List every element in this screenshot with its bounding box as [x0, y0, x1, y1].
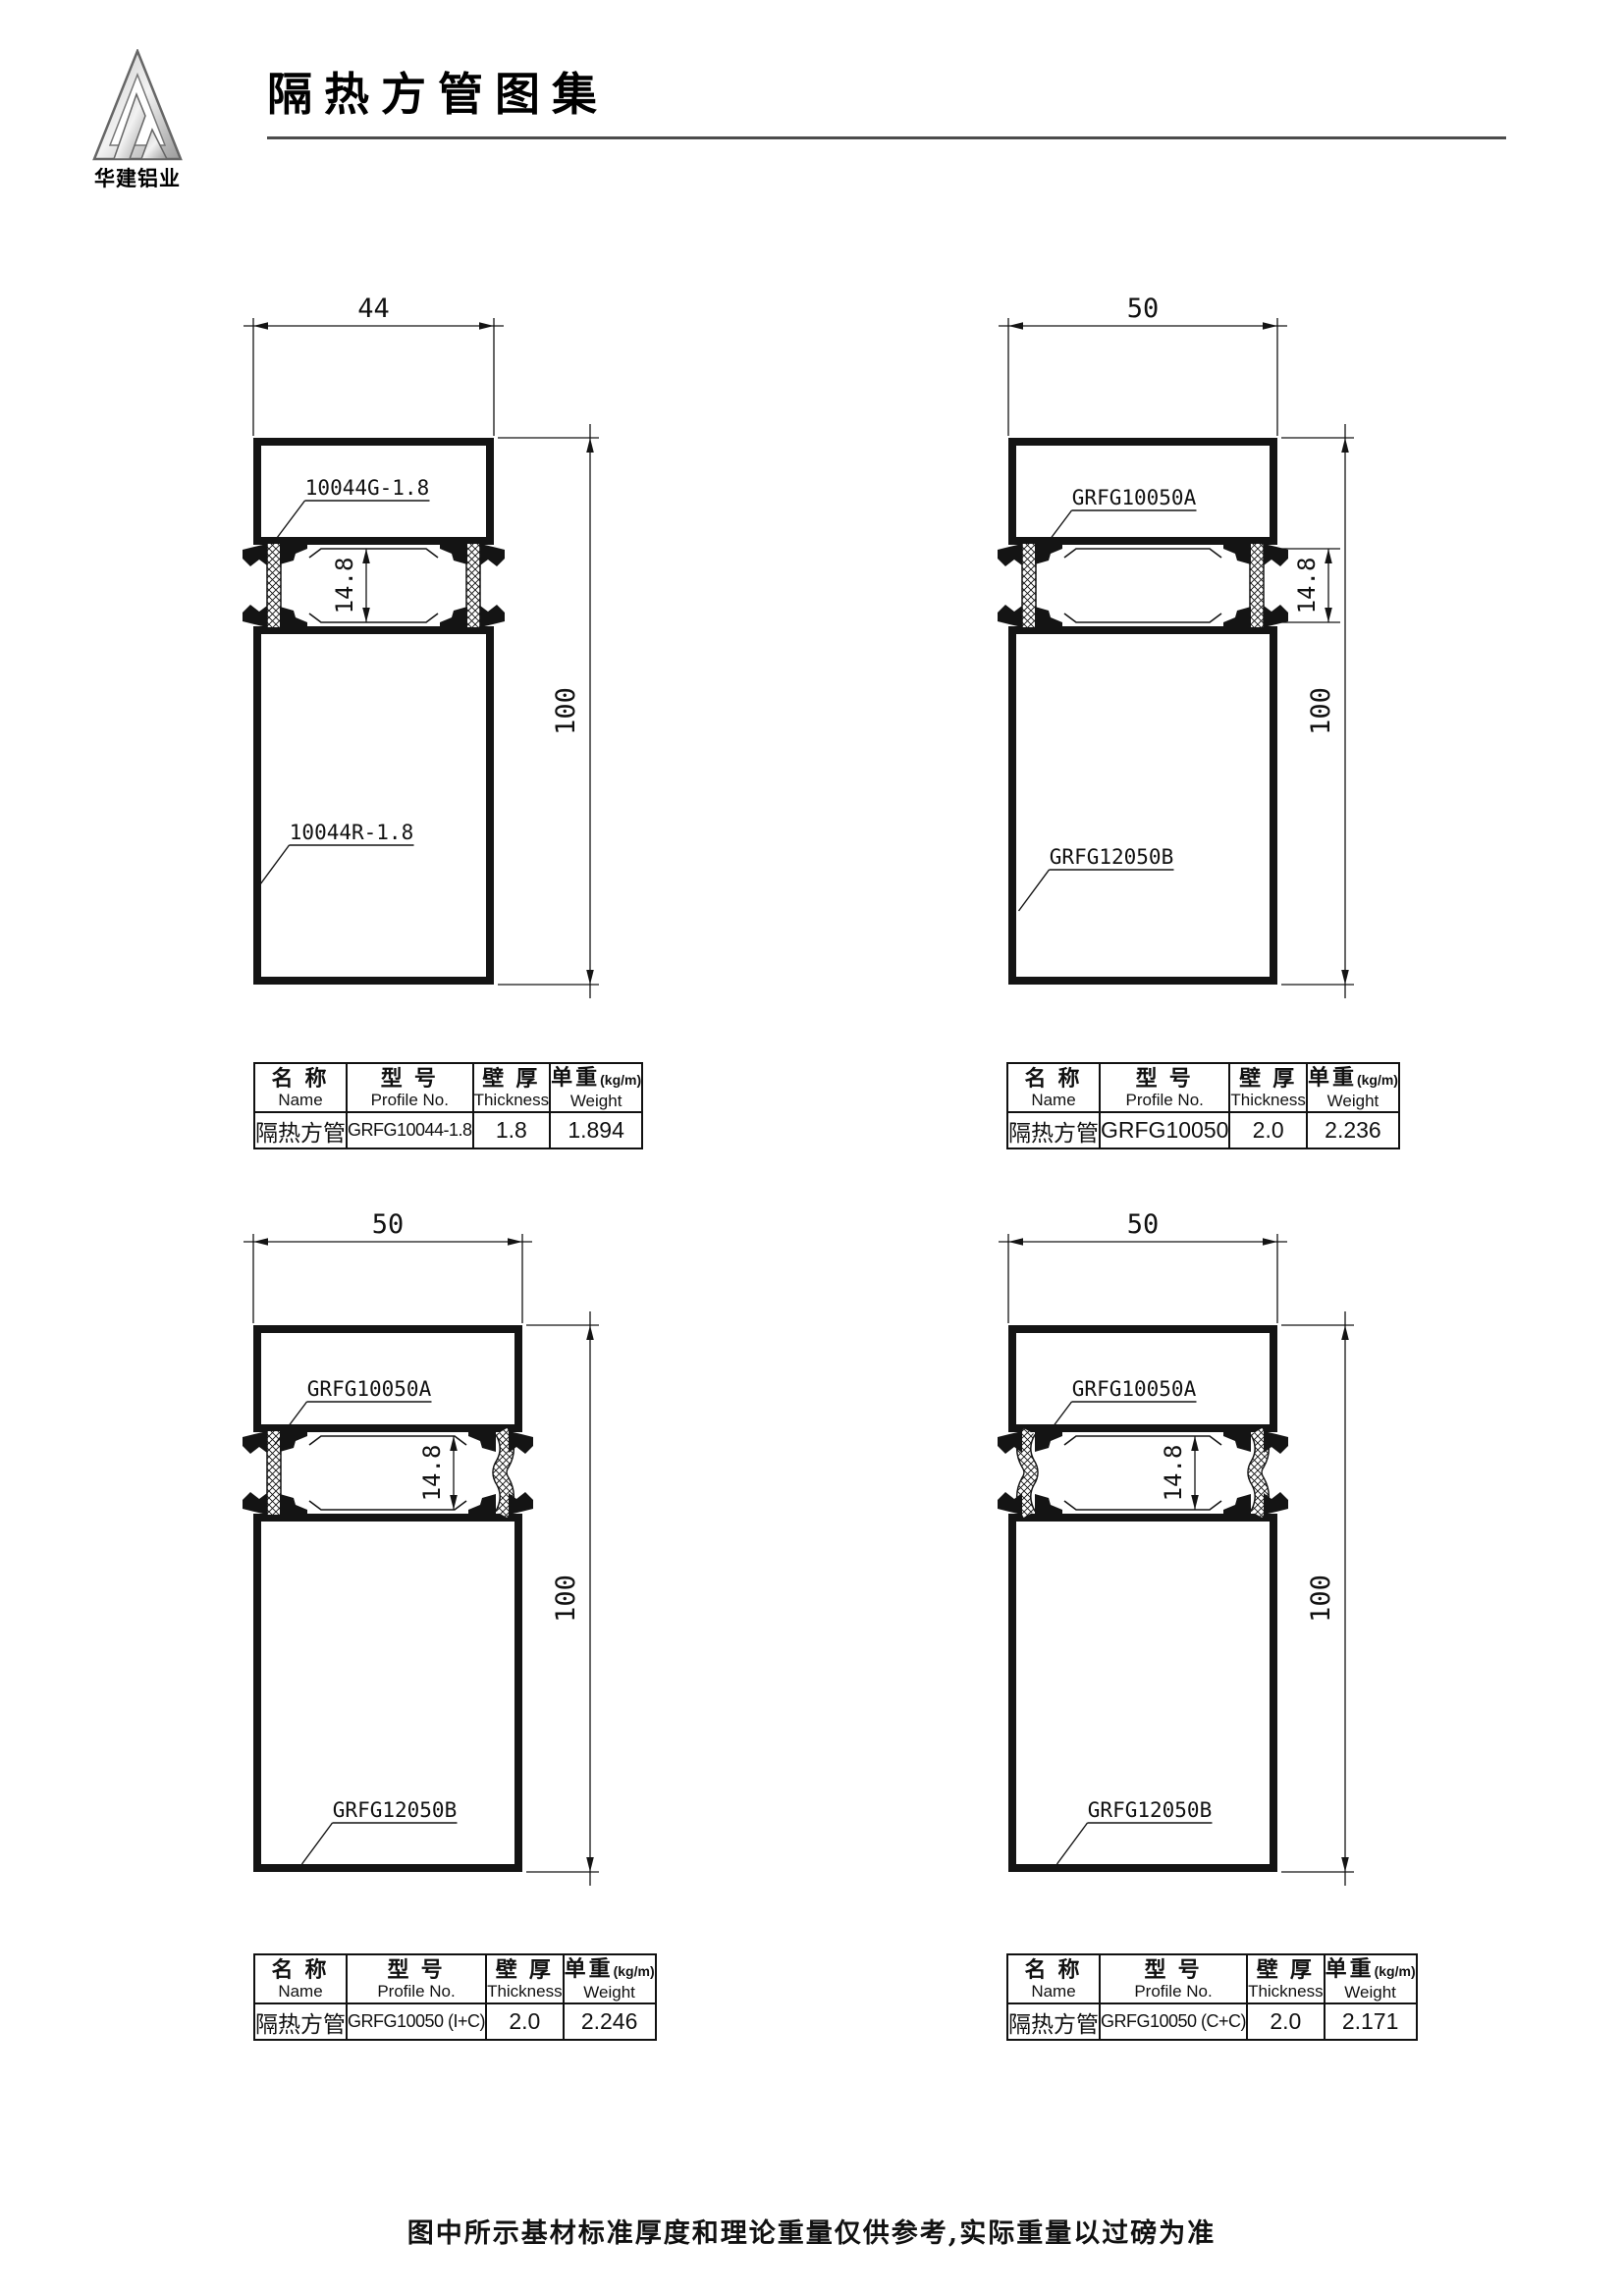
dimension-arrow — [586, 1325, 594, 1340]
dimension-arrow — [1341, 1857, 1349, 1872]
profile-drawing-4: 5010014.8GRFG10050AGRFG12050B — [900, 1168, 1362, 1914]
dimension-arrow — [586, 438, 594, 453]
dimension-arrow — [1008, 322, 1023, 330]
cell-weight: 2.236 — [1307, 1112, 1399, 1148]
top-profile-label: 10044G-1.8 — [305, 476, 429, 500]
width-dimension-text: 50 — [1127, 1209, 1160, 1240]
dimension-arrow — [1263, 1238, 1277, 1246]
dimension-arrow — [1191, 1436, 1199, 1451]
spec-table-3: 名 称Name型 号Profile No.壁 厚Thickness单重(kg/m… — [253, 1953, 657, 2041]
cell-name: 隔热方管 — [254, 2003, 347, 2040]
clamp-wing — [480, 544, 505, 566]
cell-profile-no: GRFG10050 (C+C) — [1100, 2003, 1247, 2040]
company-name: 华建铝业 — [79, 163, 196, 192]
clamp-hook — [440, 544, 467, 564]
dimension-arrow — [450, 1495, 458, 1510]
dimension-arrow — [253, 322, 268, 330]
bottom-profile-label: GRFG12050B — [333, 1798, 457, 1822]
cell-name: 隔热方管 — [1007, 2003, 1100, 2040]
cell-name: 隔热方管 — [1007, 1112, 1100, 1148]
cell-weight: 1.894 — [550, 1112, 642, 1148]
dimension-arrow — [1341, 1325, 1349, 1340]
height-dimension-text: 100 — [551, 1575, 581, 1623]
air-channel-top-edge — [309, 1436, 466, 1445]
clamp-hook — [1035, 1494, 1062, 1515]
title-divider — [267, 136, 1506, 139]
cell-thickness: 2.0 — [486, 2003, 564, 2040]
header-name: 名 称Name — [254, 1063, 347, 1112]
clamp-hook — [440, 607, 467, 627]
spec-table-4: 名 称Name型 号Profile No.壁 厚Thickness单重(kg/m… — [1006, 1953, 1418, 2041]
dimension-arrow — [1325, 608, 1332, 622]
header-name: 名 称Name — [1007, 1954, 1100, 2003]
dimension-arrow — [1008, 1238, 1023, 1246]
air-channel-bottom-edge — [1064, 1501, 1221, 1510]
clamp-hook — [280, 607, 307, 627]
clamp-hook — [1035, 607, 1062, 627]
page: 华建铝业 隔热方管图集 4410014.810044G-1.810044R-1.… — [0, 0, 1623, 2296]
dimension-arrow — [479, 322, 494, 330]
gap-dimension-text: 14.8 — [1293, 558, 1321, 614]
clamp-wing — [998, 605, 1022, 627]
header-profile-no: 型 号Profile No. — [1100, 1063, 1229, 1112]
air-channel-bottom-edge — [309, 614, 438, 622]
company-logo-icon — [90, 49, 185, 167]
bottom-profile-label: 10044R-1.8 — [290, 821, 413, 844]
cell-thickness: 2.0 — [1229, 1112, 1307, 1148]
clamp-wing — [243, 544, 267, 566]
cell-weight: 2.171 — [1325, 2003, 1417, 2040]
header-weight: 单重(kg/m)Weight — [550, 1063, 642, 1112]
gap-dimension-text: 14.8 — [331, 558, 358, 614]
cell-thickness: 2.0 — [1247, 2003, 1325, 2040]
width-dimension-text: 44 — [357, 294, 390, 324]
clamp-wing — [480, 605, 505, 627]
spec-table-grid: 名 称Name型 号Profile No.壁 厚Thickness单重(kg/m… — [1006, 1062, 1400, 1149]
dimension-arrow — [1325, 549, 1332, 563]
cell-name: 隔热方管 — [254, 1112, 347, 1148]
bottom-profile-label: GRFG12050B — [1088, 1798, 1212, 1822]
spec-table-2: 名 称Name型 号Profile No.壁 厚Thickness单重(kg/m… — [1006, 1062, 1400, 1149]
spec-table-grid: 名 称Name型 号Profile No.壁 厚Thickness单重(kg/m… — [253, 1062, 643, 1149]
header-profile-no: 型 号Profile No. — [347, 1954, 486, 2003]
dimension-arrow — [362, 608, 370, 622]
spec-table-grid: 名 称Name型 号Profile No.壁 厚Thickness单重(kg/m… — [1006, 1953, 1418, 2041]
height-dimension-text: 100 — [1306, 1575, 1336, 1623]
header-profile-no: 型 号Profile No. — [347, 1063, 473, 1112]
dimension-arrow — [253, 1238, 268, 1246]
clamp-hook — [280, 544, 307, 564]
header-profile-no: 型 号Profile No. — [1100, 1954, 1247, 2003]
header-thickness: 壁 厚Thickness — [1229, 1063, 1307, 1112]
bottom-profile-label: GRFG12050B — [1050, 845, 1173, 869]
air-channel-bottom-edge — [1064, 614, 1221, 622]
cell-weight: 2.246 — [564, 2003, 656, 2040]
clamp-hook — [1035, 1431, 1062, 1452]
clamp-hook — [468, 1431, 496, 1452]
dimension-arrow — [362, 549, 370, 563]
dimension-arrow — [1263, 322, 1277, 330]
cell-profile-no: GRFG10050 — [1100, 1112, 1229, 1148]
dimension-arrow — [586, 1857, 594, 1872]
spec-table-grid: 名 称Name型 号Profile No.壁 厚Thickness单重(kg/m… — [253, 1953, 657, 2041]
cell-profile-no: GRFG10050 (I+C) — [347, 2003, 486, 2040]
clamp-hook — [1223, 607, 1251, 627]
footer-note: 图中所示基材标准厚度和理论重量仅供参考,实际重量以过磅为准 — [0, 2212, 1623, 2250]
header-weight: 单重(kg/m)Weight — [1325, 1954, 1417, 2003]
top-profile-label: GRFG10050A — [1072, 486, 1197, 509]
air-channel-top-edge — [1064, 1436, 1221, 1445]
cell-profile-no: GRFG10044-1.8 — [347, 1112, 473, 1148]
dimension-arrow — [450, 1436, 458, 1451]
clamp-wing — [1264, 605, 1288, 627]
header-name: 名 称Name — [1007, 1063, 1100, 1112]
profile-drawing-2: 5010014.8GRFG10050AGRFG12050B — [900, 281, 1362, 1027]
clamp-wing — [998, 544, 1022, 566]
width-dimension-text: 50 — [372, 1209, 405, 1240]
header-thickness: 壁 厚Thickness — [486, 1954, 564, 2003]
bottom-tube-cavity — [261, 634, 486, 977]
gap-dimension-text: 14.8 — [418, 1445, 446, 1502]
header-name: 名 称Name — [254, 1954, 347, 2003]
dimension-arrow — [586, 970, 594, 985]
header-weight: 单重(kg/m)Weight — [564, 1954, 656, 2003]
clamp-hook — [280, 1431, 307, 1452]
clamp-hook — [468, 1494, 496, 1515]
profile-drawing-3: 5010014.8GRFG10050AGRFG12050B — [145, 1168, 607, 1914]
insulation-strip-right — [1255, 1431, 1262, 1515]
header-thickness: 壁 厚Thickness — [473, 1063, 551, 1112]
height-dimension-text: 100 — [1306, 687, 1336, 735]
page-title: 隔热方管图集 — [267, 59, 609, 124]
clamp-wing — [1264, 544, 1288, 566]
top-profile-label: GRFG10050A — [307, 1377, 432, 1401]
insulation-strip-right — [500, 1431, 507, 1515]
clamp-hook — [1223, 1494, 1251, 1515]
clamp-hook — [280, 1494, 307, 1515]
width-dimension-text: 50 — [1127, 294, 1160, 324]
dimension-arrow — [508, 1238, 522, 1246]
bottom-tube-cavity — [1016, 634, 1270, 977]
top-profile-label: GRFG10050A — [1072, 1377, 1197, 1401]
clamp-hook — [1223, 1431, 1251, 1452]
header-weight: 单重(kg/m)Weight — [1307, 1063, 1399, 1112]
clamp-hook — [1035, 544, 1062, 564]
clamp-hook — [1223, 544, 1251, 564]
clamp-wing — [243, 1492, 267, 1515]
dimension-arrow — [1341, 970, 1349, 985]
spec-table-1: 名 称Name型 号Profile No.壁 厚Thickness单重(kg/m… — [253, 1062, 643, 1149]
header-thickness: 壁 厚Thickness — [1247, 1954, 1325, 2003]
dimension-arrow — [1191, 1495, 1199, 1510]
gap-dimension-text: 14.8 — [1160, 1445, 1187, 1502]
clamp-wing — [243, 605, 267, 627]
insulation-strip-left — [1024, 1431, 1031, 1515]
profile-drawing-1: 4410014.810044G-1.810044R-1.8 — [145, 281, 607, 1027]
height-dimension-text: 100 — [551, 687, 581, 735]
air-channel-top-edge — [1064, 549, 1221, 558]
clamp-wing — [243, 1431, 267, 1454]
cell-thickness: 1.8 — [473, 1112, 551, 1148]
air-channel-top-edge — [309, 549, 438, 558]
dimension-arrow — [1341, 438, 1349, 453]
